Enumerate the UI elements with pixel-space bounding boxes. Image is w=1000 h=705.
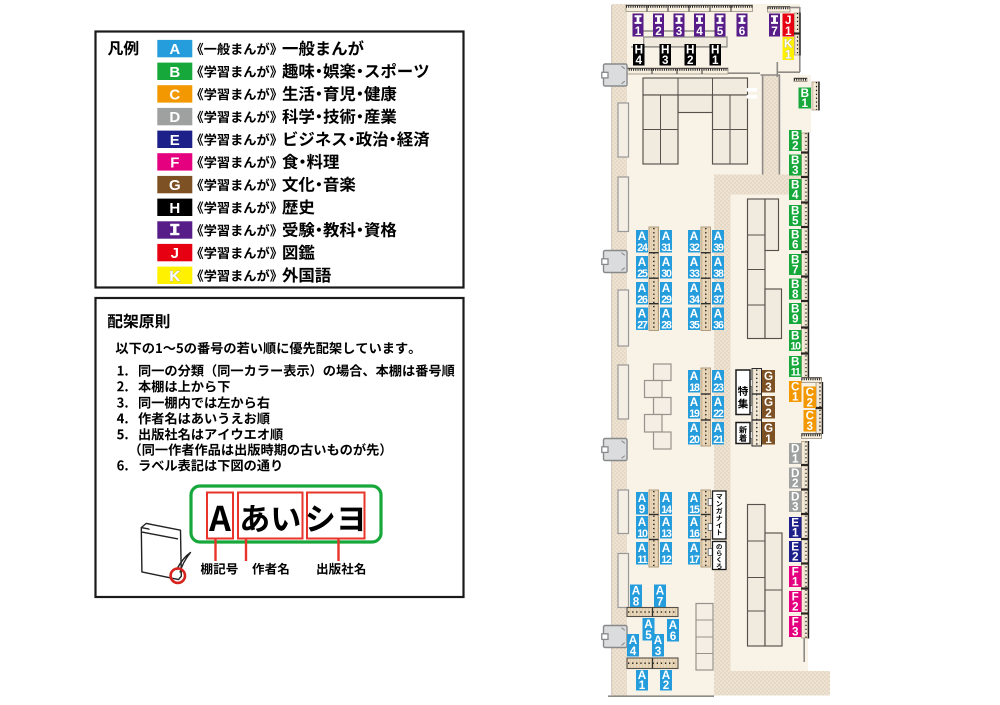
svg-text:7: 7 [657,595,664,608]
svg-text:37: 37 [713,294,724,306]
svg-text:6: 6 [739,25,746,38]
svg-text:20: 20 [689,434,700,446]
svg-text:15: 15 [689,504,700,516]
svg-text:3: 3 [765,381,772,394]
svg-text:1: 1 [792,453,799,466]
svg-text:H: H [169,200,180,217]
svg-text:2: 2 [792,477,799,490]
svg-text:2: 2 [765,407,772,420]
svg-text:1: 1 [785,25,792,38]
svg-text:1: 1 [785,48,792,61]
svg-text:12: 12 [661,554,672,566]
svg-text:J: J [171,245,179,262]
svg-text:27: 27 [637,319,648,331]
svg-text:2: 2 [792,140,799,153]
svg-text:16: 16 [689,528,700,540]
svg-text:2: 2 [807,397,814,410]
svg-text:4: 4 [630,645,637,658]
svg-text:1: 1 [792,391,799,404]
svg-text:5: 5 [717,25,724,38]
svg-text:13: 13 [661,528,672,540]
svg-text:3: 3 [792,626,799,639]
svg-text:19: 19 [689,408,700,420]
svg-text:26: 26 [637,294,648,306]
svg-text:F: F [170,154,179,171]
svg-text:24: 24 [637,242,648,254]
svg-text:G: G [169,177,181,194]
svg-text:32: 32 [689,242,700,254]
svg-text:A: A [169,41,180,58]
svg-text:4: 4 [696,25,703,38]
svg-text:11: 11 [791,367,801,379]
svg-text:2: 2 [687,54,694,67]
svg-text:1: 1 [635,25,642,38]
svg-text:34: 34 [689,294,700,306]
svg-text:2: 2 [792,551,799,564]
svg-text:K: K [169,268,180,285]
svg-text:3: 3 [792,501,799,514]
svg-text:10: 10 [637,528,648,540]
svg-text:C: C [169,86,180,103]
svg-text:18: 18 [689,382,700,394]
svg-text:2: 2 [792,601,799,614]
svg-text:1: 1 [802,97,809,110]
svg-text:23: 23 [713,382,724,394]
svg-text:7: 7 [792,264,799,277]
svg-text:3: 3 [662,54,669,67]
svg-text:8: 8 [633,595,640,608]
svg-text:39: 39 [713,242,724,254]
svg-text:36: 36 [713,319,724,331]
svg-text:35: 35 [689,319,700,331]
svg-text:4: 4 [792,189,799,202]
svg-text:14: 14 [661,504,672,516]
svg-text:7: 7 [771,25,778,38]
svg-text:6: 6 [670,630,677,643]
svg-text:29: 29 [661,294,672,306]
svg-text:2: 2 [655,25,662,38]
svg-text:3: 3 [792,164,799,177]
svg-text:28: 28 [661,319,672,331]
svg-text:31: 31 [661,242,672,254]
svg-text:6: 6 [792,239,799,252]
svg-text:2: 2 [663,679,670,692]
svg-text:30: 30 [661,268,672,280]
svg-text:4: 4 [636,54,643,67]
svg-text:1: 1 [712,54,719,67]
svg-text:1: 1 [765,433,772,446]
svg-text:1: 1 [639,679,646,692]
svg-text:21: 21 [713,434,724,446]
svg-text:11: 11 [638,554,648,566]
svg-text:9: 9 [792,313,799,326]
svg-text:5: 5 [792,215,799,228]
svg-text:17: 17 [689,554,700,566]
svg-text:38: 38 [713,268,724,280]
svg-text:33: 33 [689,268,700,280]
svg-text:3: 3 [676,25,683,38]
svg-text:8: 8 [792,288,799,301]
svg-text:9: 9 [639,503,646,516]
svg-text:10: 10 [790,341,801,353]
svg-text:25: 25 [637,268,648,280]
svg-text:22: 22 [713,408,724,420]
svg-text:B: B [169,64,180,81]
svg-text:5: 5 [645,629,652,642]
svg-text:3: 3 [655,645,662,658]
svg-text:1: 1 [792,576,799,589]
svg-text:1: 1 [792,527,799,540]
svg-text:E: E [170,132,180,149]
svg-text:3: 3 [807,420,814,433]
svg-text:D: D [169,109,180,126]
